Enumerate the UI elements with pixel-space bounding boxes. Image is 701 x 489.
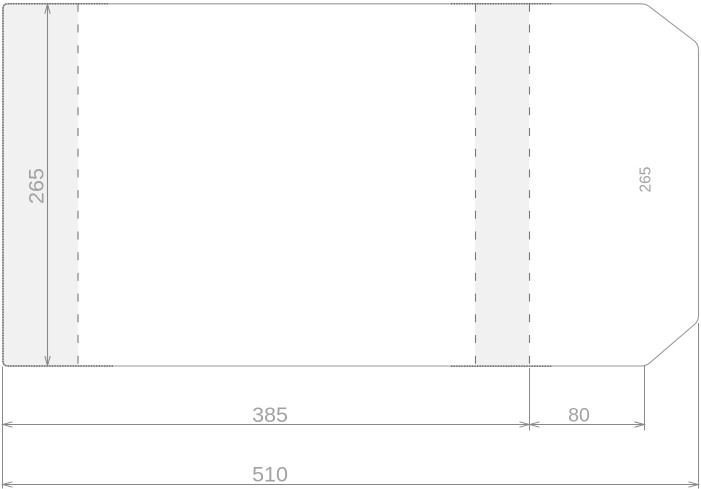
svg-text:265: 265: [638, 167, 655, 193]
svg-text:385: 385: [252, 403, 288, 427]
svg-text:265: 265: [25, 168, 49, 204]
svg-text:510: 510: [252, 463, 288, 487]
svg-text:80: 80: [568, 404, 590, 426]
